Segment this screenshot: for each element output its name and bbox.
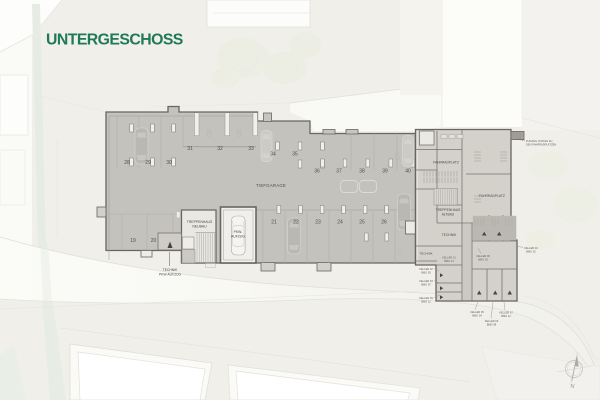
svg-text:36: 36: [314, 169, 320, 175]
svg-text:KELLER 03: KELLER 03: [419, 279, 433, 283]
svg-text:KELLER 07: KELLER 07: [499, 311, 513, 315]
svg-text:23: 23: [315, 220, 321, 226]
svg-text:34: 34: [270, 152, 276, 158]
svg-text:DEN FAHRRADPLÄTZEN: DEN FAHRRADPLÄTZEN: [526, 142, 556, 146]
svg-text:40: 40: [405, 169, 411, 175]
svg-text:20: 20: [151, 238, 157, 244]
svg-text:BMG 12: BMG 12: [421, 300, 431, 304]
svg-text:37: 37: [336, 169, 342, 175]
svg-text:BMG 02: BMG 02: [526, 250, 536, 254]
svg-text:KELLER 06: KELLER 06: [485, 319, 499, 323]
svg-text:BMG 08: BMG 08: [487, 323, 497, 327]
svg-text:BMG 12: BMG 12: [501, 314, 511, 318]
svg-text:TIEFGARAGE: TIEFGARAGE: [256, 183, 286, 188]
svg-text:25: 25: [359, 220, 365, 226]
svg-text:TREPPENHAUS: TREPPENHAUS: [436, 208, 462, 212]
svg-text:KELLER 05: KELLER 05: [470, 310, 484, 314]
svg-text:29: 29: [145, 160, 151, 166]
svg-text:ALTBAU: ALTBAU: [442, 213, 455, 217]
svg-text:BMG 05: BMG 05: [421, 271, 431, 275]
svg-text:KELLER 04: KELLER 04: [524, 246, 538, 250]
svg-text:35: 35: [292, 152, 298, 158]
svg-text:19: 19: [130, 238, 136, 244]
svg-text:FAHRRADPLATZ: FAHRRADPLATZ: [433, 161, 459, 165]
svg-text:KELLER 02: KELLER 02: [419, 267, 433, 271]
svg-text:FAHRRADPLATZ: FAHRRADPLATZ: [479, 194, 505, 198]
svg-text:UNTERGESCHOSS: UNTERGESCHOSS: [46, 32, 183, 49]
svg-text:26: 26: [381, 220, 387, 226]
svg-text:28: 28: [124, 160, 130, 166]
svg-text:TECHNIK: TECHNIK: [442, 233, 457, 237]
svg-text:KELLER 01: KELLER 01: [442, 256, 456, 260]
svg-text:AUFZUG: AUFZUG: [231, 235, 245, 239]
svg-text:TECHNIK: TECHNIK: [163, 268, 178, 272]
svg-text:BMG 13: BMG 13: [444, 259, 454, 263]
svg-text:24: 24: [337, 220, 343, 226]
svg-text:BMG 04: BMG 04: [472, 314, 482, 318]
svg-text:8: 8: [236, 128, 242, 140]
svg-text:21: 21: [271, 220, 277, 226]
svg-text:30: 30: [166, 160, 172, 166]
svg-text:BMG 03: BMG 03: [478, 258, 488, 262]
svg-text:38: 38: [359, 169, 365, 175]
svg-text:8: 8: [206, 128, 212, 140]
svg-text:NEUBAU: NEUBAU: [192, 225, 207, 229]
svg-text:BMG 07: BMG 07: [421, 283, 431, 287]
svg-text:KELLER 08: KELLER 08: [476, 254, 490, 258]
svg-text:PKW-AUFZUG: PKW-AUFZUG: [159, 273, 182, 277]
svg-text:6: 6: [397, 246, 403, 258]
svg-text:22: 22: [293, 220, 299, 226]
svg-text:KELLER 09: KELLER 09: [419, 296, 433, 300]
svg-text:31: 31: [187, 146, 193, 152]
svg-text:N: N: [571, 384, 575, 390]
svg-text:33: 33: [248, 146, 254, 152]
svg-text:TECHNIK: TECHNIK: [419, 252, 432, 256]
svg-text:39: 39: [382, 169, 388, 175]
svg-text:PKW-: PKW-: [234, 230, 243, 234]
svg-text:TREPPENHAUS: TREPPENHAUS: [187, 220, 213, 224]
svg-text:32: 32: [217, 146, 223, 152]
